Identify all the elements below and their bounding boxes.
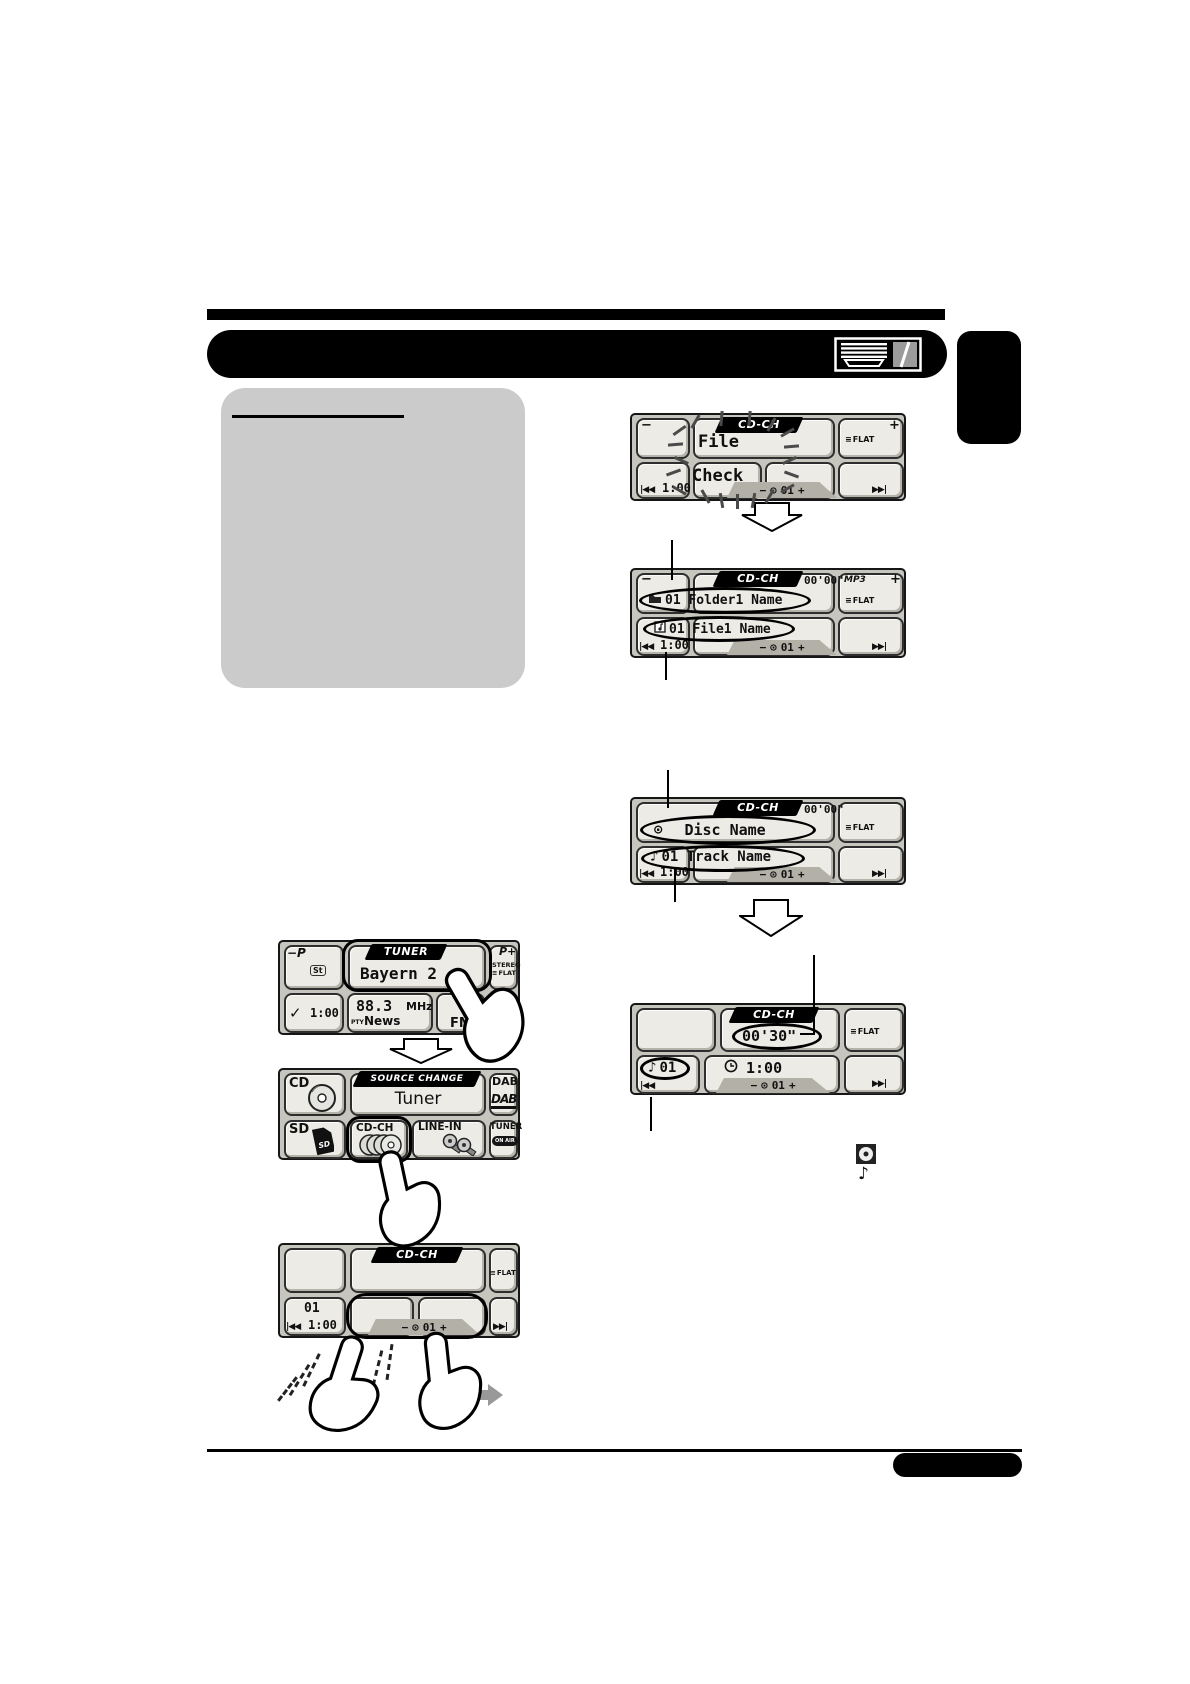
flow-down-arrow (739, 899, 803, 941)
rewind-icon: |◀◀ (639, 869, 653, 879)
eq-flat-indicator: ≡ FLAT (850, 1027, 879, 1036)
note-box (221, 388, 525, 688)
track-plus[interactable]: + (798, 641, 805, 654)
lcd-display-disc-track: CD-CH 00'00" ≡ FLAT ⊙ Disc Name ♪ 01 Tra… (630, 797, 906, 885)
fast-forward-icon: ▶▶| (872, 485, 886, 495)
display-device-icon (834, 337, 922, 376)
eq-flat-indicator: ≡ FLAT (845, 596, 874, 605)
clock-time: 1:00 (724, 1059, 782, 1077)
source-name-banner: CD-CH (712, 571, 803, 587)
sd-label: SD (289, 1122, 309, 1137)
track-minus[interactable]: − (750, 1079, 757, 1092)
note-box-underline (232, 415, 404, 418)
clock-icon (724, 1059, 738, 1077)
elapsed-time-highlight (732, 1023, 822, 1050)
callout-line (800, 1033, 815, 1035)
track-minus[interactable]: − (759, 484, 766, 497)
eq-icon: ≡ (845, 596, 852, 605)
tuner-label: TUNER (490, 1122, 522, 1132)
dab-logo: DAB (491, 1092, 516, 1109)
lcd-display-playing-time: CD-CH 00'30" ≡ FLAT ♪ 01 |◀◀ 1:00 − ⊙ 01 (630, 1003, 906, 1095)
section-title-bar (207, 330, 947, 378)
dab-label: DAB (492, 1075, 518, 1088)
footer-rule (207, 1449, 1022, 1452)
disc-number: 01 (304, 1301, 320, 1316)
track-name-highlight (641, 845, 805, 872)
eq-flat-indicator: ≡ FLAT (845, 823, 874, 832)
disc-icon: ⊙ (770, 641, 777, 654)
track-plus[interactable]: + (798, 484, 805, 497)
note-legend-icon: ♪ (858, 1164, 869, 1184)
next-track-button[interactable] (838, 617, 904, 656)
minus-corner-label: − (641, 573, 652, 586)
eq-icon: ≡ (845, 823, 852, 832)
elapsed-time: 00'00" (804, 574, 844, 587)
fast-forward-icon: ▶▶| (872, 642, 886, 652)
eq-icon: ≡ (850, 1027, 857, 1036)
page-number-tab (893, 1453, 1022, 1477)
next-track-button[interactable] (838, 462, 904, 499)
track-minus[interactable]: − (759, 641, 766, 654)
rewind-icon: |◀◀ (286, 1322, 300, 1332)
sd-card-icon: SD (310, 1127, 334, 1159)
minus-corner-label: − (641, 419, 652, 432)
disc-icon: ⊙ (761, 1079, 768, 1092)
clock-time: 1:00 (310, 1006, 339, 1020)
cd-disc-icon (306, 1083, 338, 1117)
plus-corner-label: + (889, 419, 900, 432)
fast-forward-icon: ▶▶| (872, 1079, 886, 1089)
pty-value: News (364, 1014, 400, 1028)
pty-label: PTY (351, 1019, 364, 1026)
pointing-finger (392, 1325, 507, 1439)
manual-page: − + CD-CH File Check ≡ FLAT |◀◀ 1:00 − ⊙… (0, 0, 1190, 1684)
track-number: 01 (772, 1079, 785, 1092)
file-name-highlight (643, 616, 795, 642)
eq-icon: ≡ (490, 1269, 496, 1277)
left-blank-button[interactable] (284, 1248, 346, 1293)
elapsed-time: 00'00" (804, 803, 844, 816)
callout-line (665, 652, 667, 680)
onair-badge: ON AIR (492, 1136, 518, 1146)
source-name-banner: CD-CH (728, 1007, 819, 1023)
track-select-control[interactable]: − ⊙ 01 + (727, 640, 837, 655)
folder-name-highlight (639, 587, 811, 614)
eq-icon: ≡ (845, 435, 852, 444)
callout-line (671, 540, 673, 580)
track-number: 01 (781, 868, 794, 881)
plus-corner-label: + (890, 573, 901, 586)
lcd-display-file-check: − + CD-CH File Check ≡ FLAT |◀◀ 1:00 − ⊙… (630, 413, 906, 501)
mp3-badge: MP3 (844, 575, 866, 585)
top-rule (207, 309, 945, 320)
eq-flat-indicator: ≡ FLAT (490, 1269, 516, 1277)
callout-line (650, 1097, 652, 1131)
track-number-highlight (640, 1057, 690, 1080)
callout-line (674, 868, 676, 902)
preset-down-label: −P (287, 947, 306, 959)
track-number: 01 (781, 641, 794, 654)
lcd-display-folder-file: − CD-CH 00'00" MP3 + ≡ FLAT 01 Folder1 N… (630, 568, 906, 658)
frequency-value: 88.3 (356, 997, 392, 1015)
track-select-control[interactable]: − ⊙ 01 + (716, 1078, 830, 1093)
left-display-panel (636, 1008, 716, 1052)
callout-line (667, 770, 669, 808)
eq-flat-indicator: ≡ FLAT (845, 435, 874, 444)
current-source-name: Tuner (350, 1089, 486, 1109)
rewind-icon: |◀◀ (640, 485, 654, 495)
source-name-banner: CD-CH (712, 800, 803, 816)
flash-text-line1: File (698, 432, 739, 452)
section-tab (957, 331, 1021, 444)
next-track-button[interactable] (838, 846, 904, 883)
stereo-st-badge: St (310, 965, 326, 976)
disc-name-highlight (640, 815, 816, 845)
fast-forward-icon: ▶▶| (872, 869, 886, 879)
lcd-display-source-change: CD SOURCE CHANGE Tuner DAB DAB SD SD CD-… (278, 1068, 520, 1160)
track-plus[interactable]: + (798, 868, 805, 881)
rewind-icon: |◀◀ (639, 642, 653, 652)
callout-line (813, 955, 815, 1035)
track-plus[interactable]: + (789, 1079, 796, 1092)
rewind-icon: |◀◀ (640, 1081, 654, 1091)
select-down-icon: ✓ (289, 1004, 302, 1022)
disc-icon: ⊙ (770, 868, 777, 881)
